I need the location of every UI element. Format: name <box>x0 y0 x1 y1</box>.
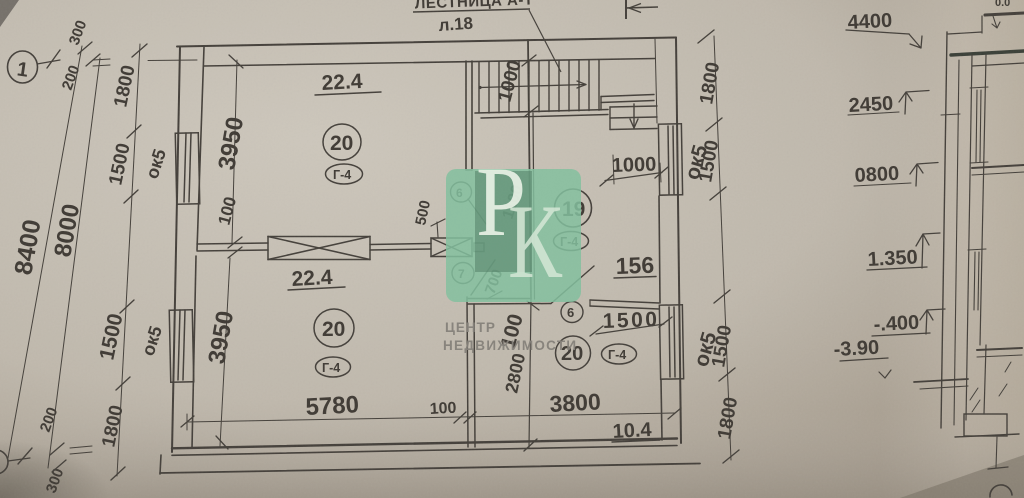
svg-text:ЦЕНТР: ЦЕНТР <box>445 320 496 335</box>
svg-text:НЕДВИЖИМОСТИ: НЕДВИЖИМОСТИ <box>443 338 577 353</box>
svg-text:К: К <box>508 183 563 300</box>
